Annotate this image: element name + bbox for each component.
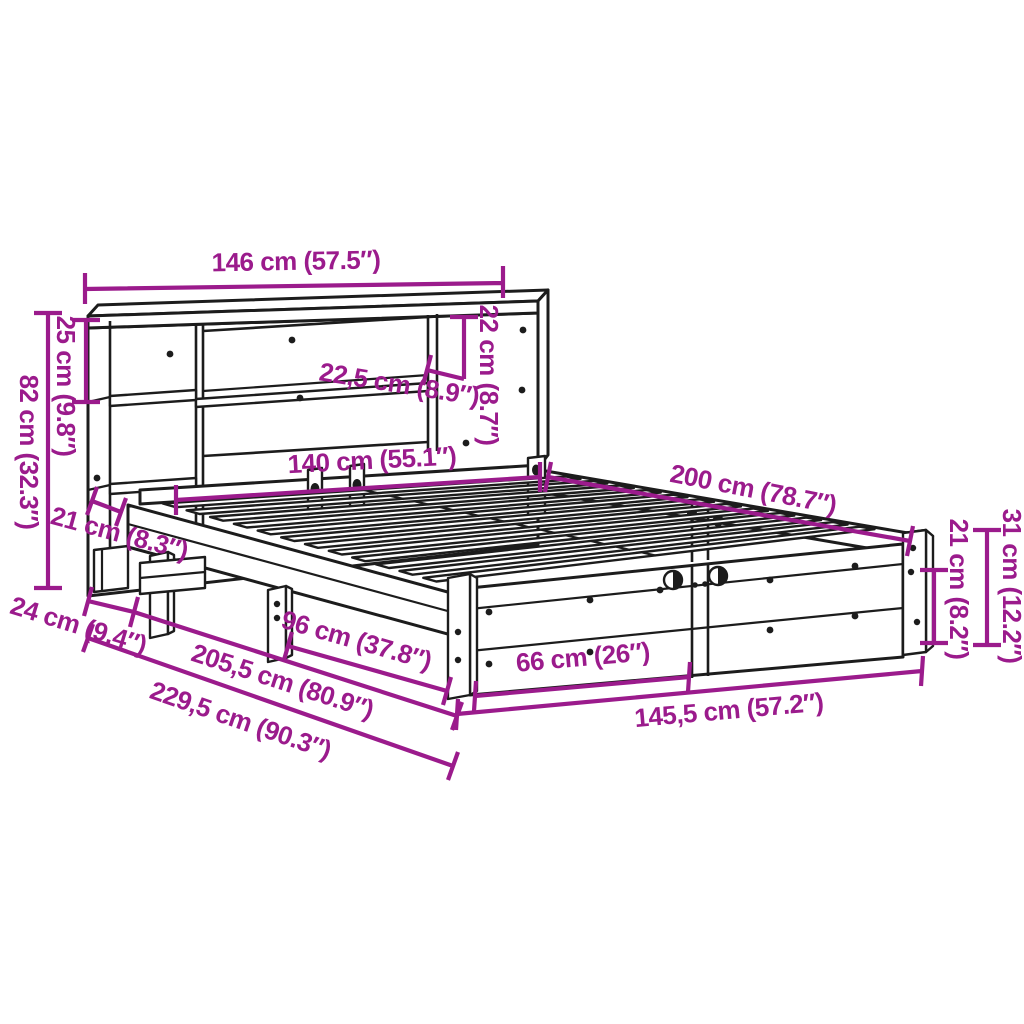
dim-headboard-depth: 24 cm (9.4″) — [7, 587, 150, 660]
product-dimension-diagram: 146 cm (57.5″) 25 cm (9.8″) 82 cm (32.3″… — [0, 0, 1024, 1024]
bed-dimension-drawing: 146 cm (57.5″) 25 cm (9.8″) 82 cm (32.3″… — [0, 0, 1024, 1024]
foot-left-post — [448, 574, 477, 699]
dim-label-top-shelf-height: 25 cm (9.8″) — [51, 316, 81, 457]
dim-frame-height: 31 cm (12.2″) — [973, 509, 1024, 664]
dim-label-side-rail-height: 21 cm (8.2″) — [944, 519, 974, 660]
dim-label-niche-height: 22 cm (8.7″) — [474, 305, 504, 446]
dim-label-frame-height: 31 cm (12.2″) — [997, 509, 1024, 664]
dim-label-headboard-depth: 24 cm (9.4″) — [7, 590, 150, 660]
dim-label-headboard-height: 82 cm (32.3″) — [14, 375, 44, 530]
dim-label-headboard-width: 146 cm (57.5″) — [211, 244, 380, 277]
